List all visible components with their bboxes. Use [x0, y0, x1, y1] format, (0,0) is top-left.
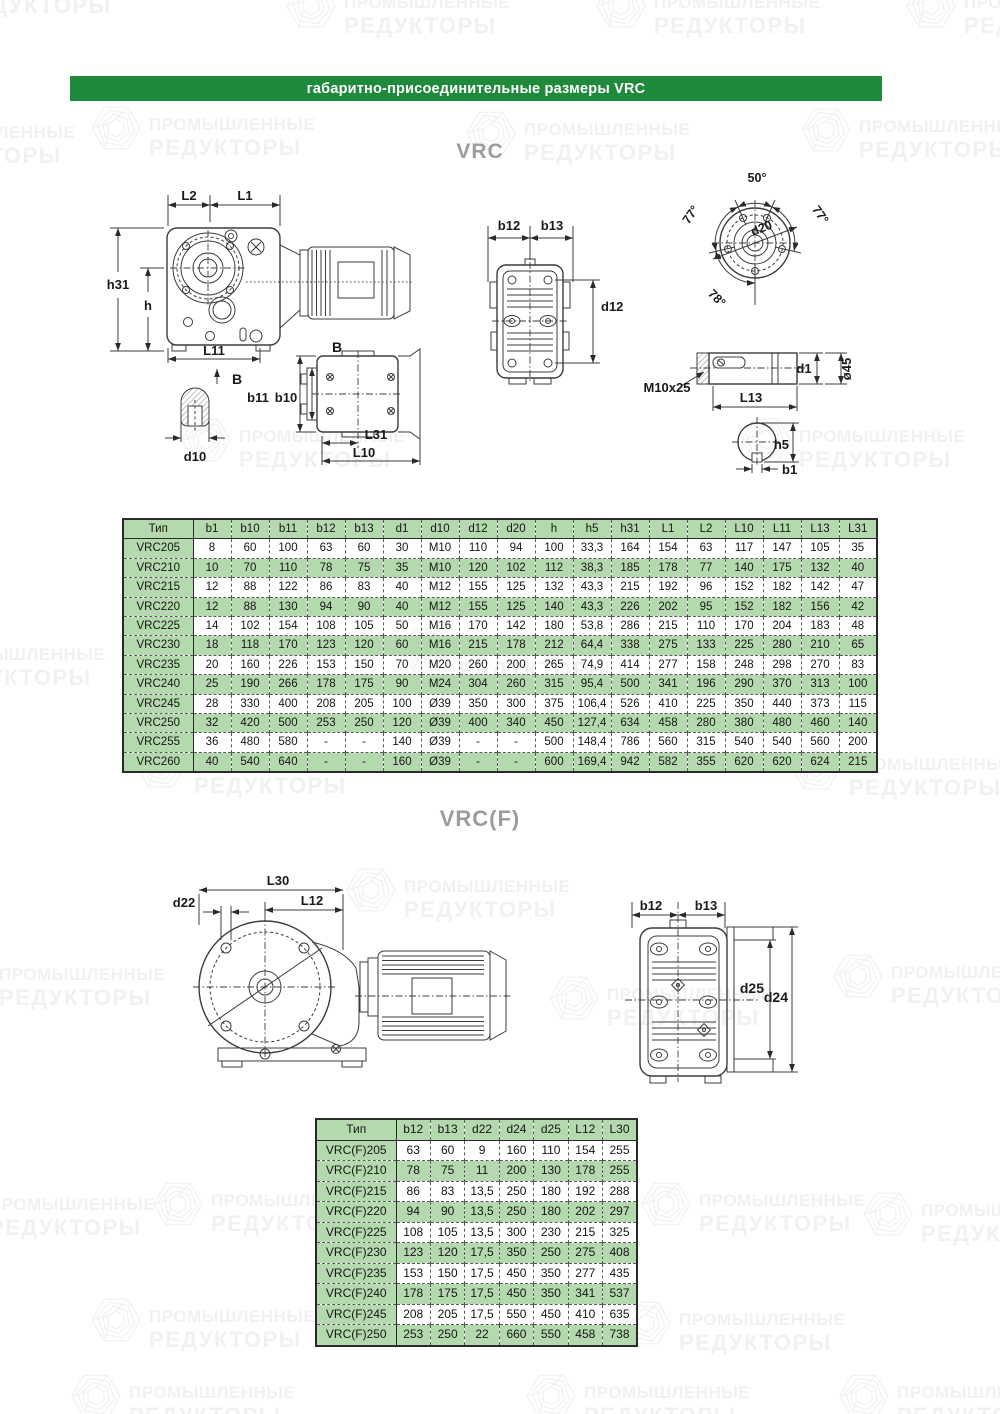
value-cell: 18 [193, 636, 231, 655]
column-header: Тип [316, 1119, 396, 1140]
value-cell: 440 [763, 694, 801, 713]
row-type-cell: VRC(F)250 [316, 1325, 396, 1346]
value-cell: 70 [383, 655, 421, 674]
dim-label-h31: h31 [107, 277, 129, 292]
value-cell: 175 [430, 1284, 464, 1305]
column-header: L13 [801, 519, 839, 539]
dim-label-d24: d24 [764, 989, 788, 1005]
value-cell: 88 [231, 597, 269, 616]
value-cell: 153 [307, 655, 345, 674]
watermark: ПРОМЫШЛЕННЫЕРЕДУКТОРЫ [90, 1292, 315, 1353]
value-cell: 75 [430, 1161, 464, 1182]
value-cell: 12 [193, 597, 231, 616]
header-banner: габаритно-присоединительные размеры VRC [70, 76, 882, 101]
value-cell: 286 [611, 617, 649, 636]
value-cell: 152 [725, 597, 763, 616]
value-cell: 132 [801, 558, 839, 577]
value-cell: 370 [763, 675, 801, 694]
value-cell: 380 [725, 714, 763, 733]
value-cell: 110 [534, 1140, 568, 1161]
value-cell: 400 [269, 694, 307, 713]
value-cell: 624 [801, 752, 839, 772]
watermark: ПРОМЫШЛЕННЫЕРЕДУКТОРЫ [90, 100, 315, 161]
value-cell: 43,3 [573, 578, 611, 597]
value-cell: 108 [307, 617, 345, 636]
dim-label-d20: d20 [749, 218, 774, 239]
value-cell: 100 [383, 694, 421, 713]
row-type-cell: VRC(F)235 [316, 1263, 396, 1284]
value-cell: 60 [231, 539, 269, 558]
value-cell: 526 [611, 694, 649, 713]
value-cell: 155 [459, 597, 497, 616]
table-row: VRC(F)25025325022660550458738 [316, 1325, 637, 1346]
value-cell: 350 [725, 694, 763, 713]
value-cell: 63 [396, 1140, 430, 1161]
dim-label-b1: b1 [782, 462, 797, 477]
value-cell: 60 [430, 1140, 464, 1161]
angle-label-77-left: 77° [680, 203, 702, 227]
value-cell: 115 [839, 694, 877, 713]
value-cell: 600 [535, 752, 573, 772]
value-cell: 537 [603, 1284, 637, 1305]
vrcf-drawings: L30 L12 d22 [60, 850, 960, 1090]
value-cell: 142 [801, 578, 839, 597]
value-cell: 458 [649, 714, 687, 733]
value-cell: 47 [839, 578, 877, 597]
table-row: VRC205860100636030M101109410033,31641546… [123, 539, 877, 558]
value-cell: 660 [499, 1325, 533, 1346]
value-cell: 86 [307, 578, 345, 597]
value-cell: 60 [345, 539, 383, 558]
value-cell: 290 [725, 675, 763, 694]
value-cell: 95,4 [573, 675, 611, 694]
value-cell: 250 [499, 1202, 533, 1223]
value-cell: 140 [383, 733, 421, 752]
watermark: ПРОМЫШЛЕННЫЕРЕДУКТОРЫ [800, 102, 1000, 163]
value-cell: 40 [839, 558, 877, 577]
value-cell: 265 [535, 655, 573, 674]
row-type-cell: VRC(F)245 [316, 1304, 396, 1325]
row-type-cell: VRC(F)205 [316, 1140, 396, 1161]
value-cell: 133 [687, 636, 725, 655]
value-cell: 12 [193, 578, 231, 597]
value-cell: 250 [499, 1181, 533, 1202]
catalog-page: ПРОМЫШЛЕННЫЕРЕДУКТОРЫПРОМЫШЛЕННЫЕРЕДУКТО… [0, 0, 1000, 1414]
column-header: b10 [231, 519, 269, 539]
table-row: VRC(F)215868313,5250180192288 [316, 1181, 637, 1202]
value-cell: 200 [839, 733, 877, 752]
value-cell: 178 [307, 675, 345, 694]
watermark-text: ПРОМЫШЛЕННЫЕРЕДУКТОРЫ [584, 1383, 750, 1414]
value-cell: 178 [568, 1161, 602, 1182]
value-cell: 156 [801, 597, 839, 616]
column-header: b13 [430, 1119, 464, 1140]
row-type-cell: VRC205 [123, 539, 193, 558]
value-cell: 215 [649, 617, 687, 636]
value-cell: 8 [193, 539, 231, 558]
value-cell: 450 [499, 1284, 533, 1305]
value-cell: 350 [534, 1284, 568, 1305]
value-cell: 620 [725, 752, 763, 772]
watermark: ПРОМЫШЛЕННЫЕРЕДУКТОРЫ [0, 630, 105, 691]
value-cell: 140 [725, 558, 763, 577]
value-cell: 786 [611, 733, 649, 752]
value-cell: - [345, 733, 383, 752]
value-cell: 20 [193, 655, 231, 674]
value-cell: 14 [193, 617, 231, 636]
value-cell: 373 [801, 694, 839, 713]
watermark-logo-icon [862, 1186, 914, 1242]
watermark: ПРОМЫШЛЕННЫЕРЕДУКТОРЫ [838, 1368, 1000, 1414]
value-cell: 450 [534, 1304, 568, 1325]
value-cell: 325 [603, 1222, 637, 1243]
value-cell: 75 [345, 558, 383, 577]
value-cell: 112 [535, 558, 573, 577]
value-cell: Ø39 [421, 733, 459, 752]
value-cell: Ø39 [421, 752, 459, 772]
value-cell: 164 [611, 539, 649, 558]
row-type-cell: VRC(F)240 [316, 1284, 396, 1305]
value-cell: 150 [430, 1263, 464, 1284]
value-cell: 205 [430, 1304, 464, 1325]
watermark: ПРОМЫШЛЕННЫЕРЕДУКТОРЫ [0, 0, 125, 19]
table-row: VRC2352016022615315070M2026020026574,941… [123, 655, 877, 674]
value-cell: - [459, 733, 497, 752]
row-type-cell: VRC240 [123, 675, 193, 694]
table-row: VRC(F)210787511200130178255 [316, 1161, 637, 1182]
value-cell: 100 [269, 539, 307, 558]
value-cell: 65 [839, 636, 877, 655]
value-cell: 250 [430, 1325, 464, 1346]
column-header: d24 [499, 1119, 533, 1140]
value-cell: 208 [307, 694, 345, 713]
value-cell: 147 [763, 539, 801, 558]
watermark-text: ПРОМЫШЛЕННЫЕРЕДУКТОРЫ [699, 1191, 865, 1237]
value-cell: 178 [649, 558, 687, 577]
value-cell: 226 [611, 597, 649, 616]
watermark-logo-icon [838, 1368, 890, 1414]
value-cell: 275 [568, 1243, 602, 1264]
value-cell: 42 [839, 597, 877, 616]
view-label-b: B [332, 339, 342, 355]
table-row: VRC(F)20563609160110154255 [316, 1140, 637, 1161]
value-cell: 270 [801, 655, 839, 674]
value-cell: 110 [687, 617, 725, 636]
dim-label-h5: h5 [774, 437, 789, 452]
value-cell: 170 [725, 617, 763, 636]
value-cell: 560 [801, 733, 839, 752]
row-type-cell: VRC250 [123, 714, 193, 733]
dim-label-b12: b12 [498, 218, 520, 233]
watermark-text: ПРОМЫШЛЕННЫЕРЕДУКТОРЫ [129, 1383, 295, 1414]
row-type-cell: VRC220 [123, 597, 193, 616]
table-row: VRC2201288130949040M1215512514043,322620… [123, 597, 877, 616]
value-cell: 102 [497, 558, 535, 577]
value-cell: 183 [801, 617, 839, 636]
watermark-logo-icon [70, 1368, 122, 1414]
value-cell: 120 [345, 636, 383, 655]
value-cell: 74,9 [573, 655, 611, 674]
table-row: VRC(F)24017817517,5450350341537 [316, 1284, 637, 1305]
value-cell: 266 [269, 675, 307, 694]
value-cell: 204 [763, 617, 801, 636]
value-cell: 300 [497, 694, 535, 713]
value-cell: 620 [763, 752, 801, 772]
value-cell: 48 [839, 617, 877, 636]
value-cell: 540 [725, 733, 763, 752]
value-cell: 215 [839, 752, 877, 772]
value-cell: 70 [231, 558, 269, 577]
watermark-text: ПРОМЫШЛЕННЫЕРЕДУКТОРЫ [344, 0, 510, 39]
value-cell: 180 [535, 617, 573, 636]
value-cell: 375 [535, 694, 573, 713]
watermark-text: ПРОМЫШЛЕННЫЕРЕДУКТОРЫ [524, 120, 690, 166]
value-cell: 640 [269, 752, 307, 772]
value-cell: 208 [396, 1304, 430, 1325]
watermark: ПРОМЫШЛЕННЫЕРЕДУКТОРЫ [862, 1186, 1000, 1247]
value-cell: 277 [649, 655, 687, 674]
dim-label-b13-f: b13 [695, 898, 717, 913]
watermark-logo-icon [285, 0, 337, 34]
section-title-vrc: VRC [420, 140, 540, 164]
table-row: VRC(F)220949013,5250180202297 [316, 1202, 637, 1223]
value-cell: 50 [383, 617, 421, 636]
value-cell: 40 [383, 578, 421, 597]
value-cell: 550 [534, 1325, 568, 1346]
table-row: VRC26040540640--160Ø39--600169,494258235… [123, 752, 877, 772]
dim-label-d22: d22 [173, 895, 195, 910]
value-cell: 96 [687, 578, 725, 597]
column-header: b12 [396, 1119, 430, 1140]
value-cell: 435 [603, 1263, 637, 1284]
table-row: VRC2251410215410810550M1617014218053,828… [123, 617, 877, 636]
value-cell: 340 [497, 714, 535, 733]
value-cell: 355 [687, 752, 725, 772]
value-cell: 480 [231, 733, 269, 752]
value-cell: 120 [459, 558, 497, 577]
section-title-vrcf: VRC(F) [420, 806, 540, 832]
dim-label-d10: d10 [184, 449, 206, 464]
thread-label-m10x25: M10x25 [644, 380, 691, 395]
dim-label-l10: L10 [353, 445, 375, 460]
value-cell: 215 [611, 578, 649, 597]
value-cell: 130 [269, 597, 307, 616]
value-cell: 315 [535, 675, 573, 694]
value-cell: 315 [687, 733, 725, 752]
value-cell: 180 [534, 1181, 568, 1202]
value-cell: 182 [763, 578, 801, 597]
table-row: VRC2402519026617817590M2430426031595,450… [123, 675, 877, 694]
value-cell: 338 [611, 636, 649, 655]
value-cell: 212 [535, 636, 573, 655]
dim-label-d12: d12 [601, 299, 623, 314]
value-cell: 178 [497, 636, 535, 655]
dim-label-l12: L12 [301, 893, 323, 908]
value-cell: 86 [396, 1181, 430, 1202]
column-header: L12 [568, 1119, 602, 1140]
value-cell: 248 [725, 655, 763, 674]
value-cell: 118 [231, 636, 269, 655]
value-cell: 582 [649, 752, 687, 772]
value-cell: 450 [535, 714, 573, 733]
column-header: d22 [465, 1119, 499, 1140]
dim-label-l11: L11 [203, 343, 225, 358]
column-header: d20 [497, 519, 535, 539]
value-cell: M20 [421, 655, 459, 674]
value-cell: 83 [345, 578, 383, 597]
column-header: h5 [573, 519, 611, 539]
value-cell: 300 [499, 1222, 533, 1243]
value-cell: 90 [383, 675, 421, 694]
section-cut-label-b: B [232, 371, 242, 387]
watermark-logo-icon [640, 1176, 692, 1232]
value-cell: 123 [307, 636, 345, 655]
dim-label-d25: d25 [740, 980, 764, 996]
watermark-logo-icon [905, 0, 957, 34]
dim-label-b10: b10 [275, 390, 297, 405]
value-cell: 260 [497, 675, 535, 694]
angle-label-50: 50° [748, 171, 767, 185]
watermark: ПРОМЫШЛЕННЫЕРЕДУКТОРЫ [285, 0, 510, 39]
value-cell: 230 [534, 1222, 568, 1243]
table-row: VRC(F)23012312017,5350250275408 [316, 1243, 637, 1264]
row-type-cell: VRC215 [123, 578, 193, 597]
value-cell: 458 [568, 1325, 602, 1346]
value-cell: 200 [497, 655, 535, 674]
value-cell: 102 [231, 617, 269, 636]
table-row: VRC(F)23515315017,5450350277435 [316, 1263, 637, 1284]
value-cell: 280 [763, 636, 801, 655]
value-cell: 202 [649, 597, 687, 616]
value-cell: 500 [269, 714, 307, 733]
value-cell: 341 [568, 1284, 602, 1305]
value-cell: 90 [345, 597, 383, 616]
value-cell: - [307, 733, 345, 752]
value-cell: 225 [687, 694, 725, 713]
value-cell: 192 [649, 578, 687, 597]
watermark: ПРОМЫШЛЕННЫЕРЕДУКТОРЫ [70, 1368, 295, 1414]
value-cell: 77 [687, 558, 725, 577]
value-cell: 43,3 [573, 597, 611, 616]
value-cell: 83 [839, 655, 877, 674]
column-header: h [535, 519, 573, 539]
watermark-text: ПРОМЫШЛЕННЫЕРЕДУКТОРЫ [0, 0, 125, 19]
watermark-text: ПРОМЫШЛЕННЫЕРЕДУКТОРЫ [921, 1201, 1000, 1247]
row-type-cell: VRC(F)215 [316, 1181, 396, 1202]
value-cell: 175 [763, 558, 801, 577]
value-cell: 255 [603, 1161, 637, 1182]
value-cell: 158 [687, 655, 725, 674]
value-cell: 125 [497, 578, 535, 597]
value-cell: 226 [269, 655, 307, 674]
column-header: h31 [611, 519, 649, 539]
row-type-cell: VRC(F)225 [316, 1222, 396, 1243]
row-type-cell: VRC(F)210 [316, 1161, 396, 1182]
value-cell: - [459, 752, 497, 772]
dim-label-dia45: ø45 [839, 358, 854, 380]
watermark: ПРОМЫШЛЕННЫЕРЕДУКТОРЫ [0, 108, 75, 169]
value-cell: 260 [459, 655, 497, 674]
value-cell: 288 [603, 1181, 637, 1202]
column-header: d25 [534, 1119, 568, 1140]
value-cell: 250 [345, 714, 383, 733]
value-cell: 160 [499, 1140, 533, 1161]
column-header: L2 [687, 519, 725, 539]
value-cell: 540 [231, 752, 269, 772]
value-cell: 414 [611, 655, 649, 674]
value-cell: 215 [459, 636, 497, 655]
value-cell: 108 [396, 1222, 430, 1243]
value-cell: 94 [307, 597, 345, 616]
value-cell: 142 [497, 617, 535, 636]
angle-label-78: 78° [705, 287, 728, 310]
dim-label-l31: L31 [365, 427, 387, 442]
value-cell: 154 [649, 539, 687, 558]
value-cell: 190 [231, 675, 269, 694]
value-cell: 330 [231, 694, 269, 713]
table-row: VRC2151288122868340M1215512513243,321519… [123, 578, 877, 597]
value-cell: 94 [497, 539, 535, 558]
value-cell: M16 [421, 636, 459, 655]
value-cell: 132 [535, 578, 573, 597]
value-cell: 120 [383, 714, 421, 733]
value-cell: 277 [568, 1263, 602, 1284]
value-cell: 942 [611, 752, 649, 772]
row-type-cell: VRC260 [123, 752, 193, 772]
value-cell: 225 [725, 636, 763, 655]
value-cell: Ø39 [421, 714, 459, 733]
watermark-text: ПРОМЫШЛЕННЫЕРЕДУКТОРЫ [149, 115, 315, 161]
value-cell: 634 [611, 714, 649, 733]
value-cell: 200 [499, 1161, 533, 1182]
value-cell: 105 [430, 1222, 464, 1243]
vrc-drawings: L2 L1 h31 h L11 B d10 [60, 170, 960, 480]
value-cell: 192 [568, 1181, 602, 1202]
value-cell: 35 [383, 558, 421, 577]
value-cell: 105 [345, 617, 383, 636]
value-cell: 35 [839, 539, 877, 558]
column-header: Тип [123, 519, 193, 539]
value-cell: 10 [193, 558, 231, 577]
value-cell: 63 [307, 539, 345, 558]
value-cell: 110 [269, 558, 307, 577]
column-header: L10 [725, 519, 763, 539]
watermark: ПРОМЫШЛЕННЫЕРЕДУКТОРЫ [525, 1368, 750, 1414]
value-cell: 153 [396, 1263, 430, 1284]
column-header: b12 [307, 519, 345, 539]
value-cell: 250 [534, 1243, 568, 1264]
value-cell: - [497, 752, 535, 772]
value-cell: M24 [421, 675, 459, 694]
value-cell: 255 [603, 1140, 637, 1161]
value-cell: 635 [603, 1304, 637, 1325]
value-cell: 17,5 [465, 1284, 499, 1305]
value-cell: 32 [193, 714, 231, 733]
value-cell: 178 [396, 1284, 430, 1305]
value-cell: 350 [459, 694, 497, 713]
angle-label-77-right: 77° [809, 203, 831, 227]
value-cell: 13,5 [465, 1202, 499, 1223]
watermark-text: ПРОМЫШЛЕННЫЕРЕДУКТОРЫ [0, 645, 105, 691]
value-cell: 155 [459, 578, 497, 597]
value-cell: 148,4 [573, 733, 611, 752]
value-cell: 400 [459, 714, 497, 733]
dim-label-l13: L13 [740, 390, 762, 405]
banner-title: габаритно-присоединительные размеры VRC [307, 81, 646, 97]
watermark-logo-icon [90, 1292, 142, 1348]
table-row: VRC25032420500253250120Ø39400340450127,4… [123, 714, 877, 733]
value-cell: 110 [459, 539, 497, 558]
